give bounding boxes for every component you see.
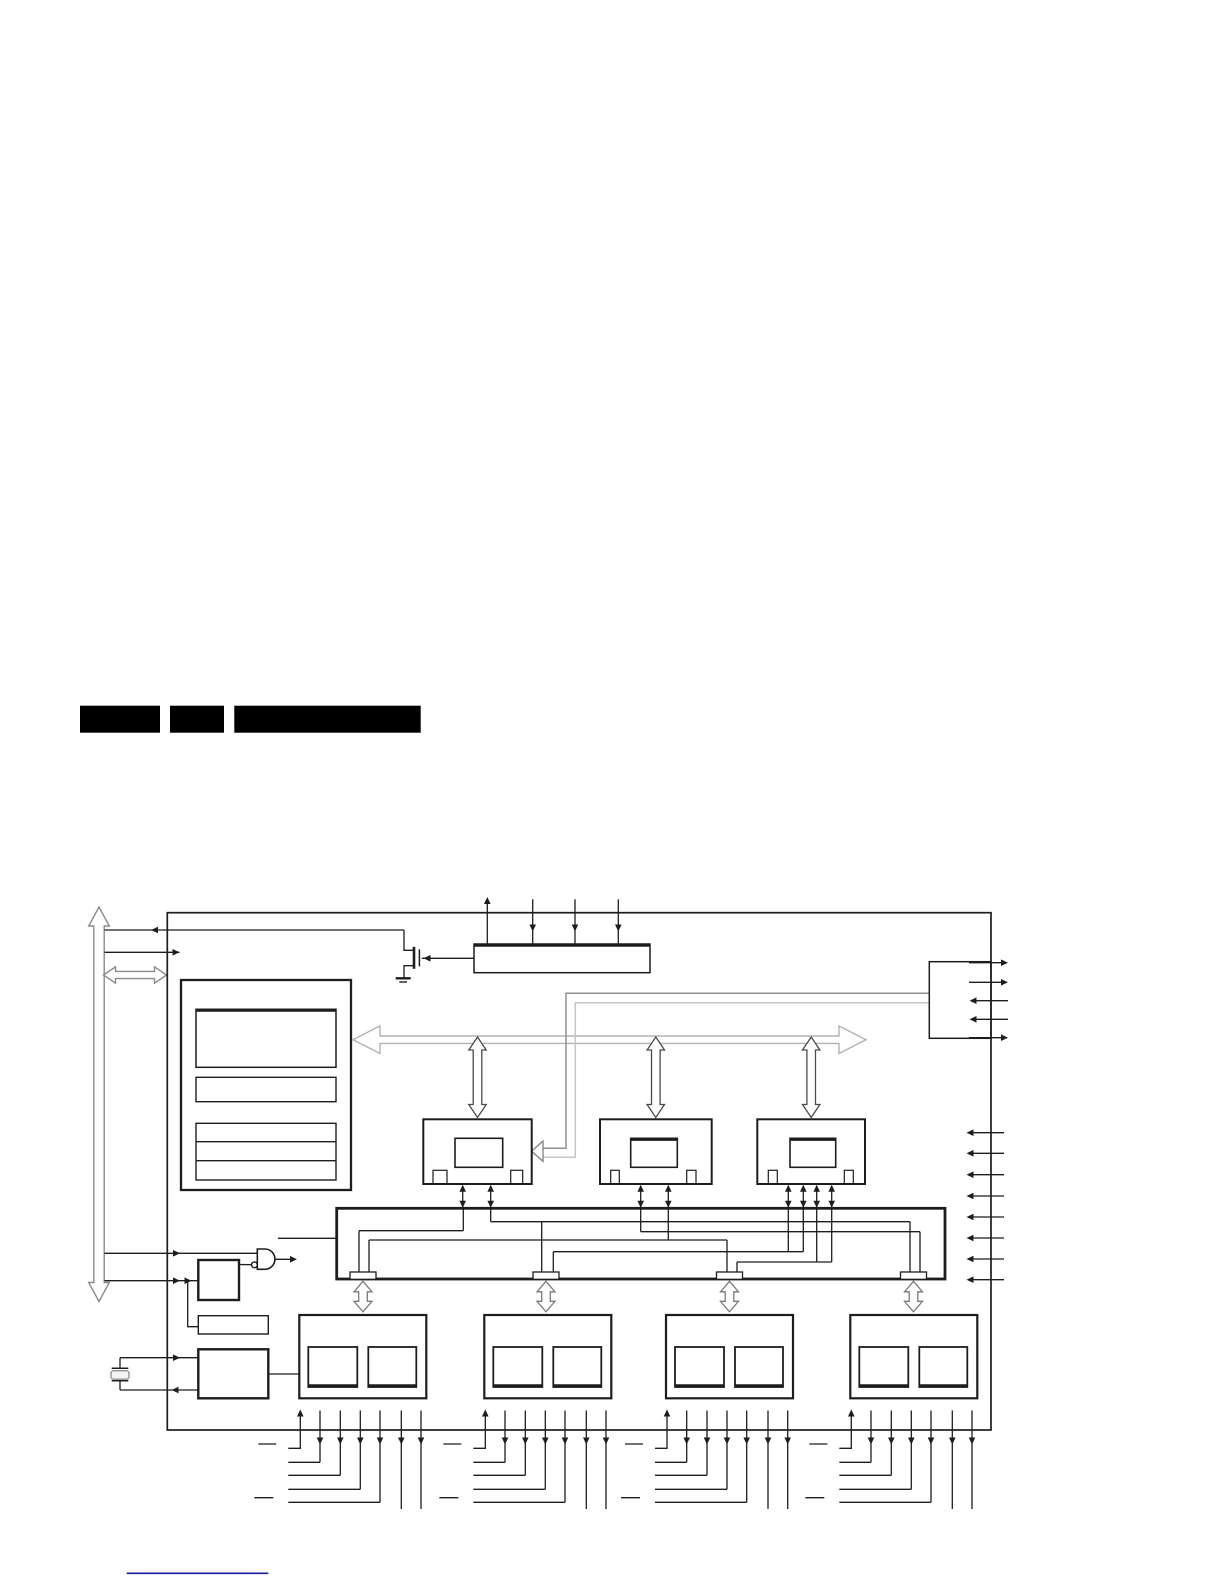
left-inner-rect-3	[196, 1123, 336, 1180]
top-pin-in-2-arrowhead	[572, 925, 579, 932]
right-edge-input-4-arrowhead	[967, 1193, 974, 1200]
mid-block-2-notch-left	[611, 1170, 620, 1183]
control-branch-wire	[188, 1281, 199, 1327]
right-edge-input-3-arrowhead	[967, 1171, 974, 1178]
bus-to-bottom-block-arrow-4	[905, 1281, 923, 1312]
right-edge-input-5-arrowhead	[967, 1214, 974, 1221]
fan-2-pin-5-arrowhead	[562, 1438, 569, 1445]
fan-2-pin-2-arrowhead	[502, 1438, 509, 1445]
divider-register-block	[198, 1316, 268, 1334]
bottom-block-2-core-1	[493, 1347, 542, 1387]
drain-feedback-arrowhead	[151, 927, 158, 934]
nand-gate-body	[257, 1249, 275, 1269]
ic-block-diagram	[0, 0, 1224, 1584]
mid-pin-link-4-up-arrowhead	[665, 1185, 672, 1192]
fan-4-pin-2-arrowhead	[868, 1438, 875, 1445]
mid-pin-link-1-up-arrowhead	[459, 1185, 466, 1192]
fan-4-pin-1-arrowhead	[848, 1410, 855, 1417]
fan-1-pin-4-arrowhead	[357, 1438, 364, 1445]
mid-block-3	[757, 1119, 865, 1184]
bus-tab-2	[533, 1272, 559, 1279]
mid-pin-link-3-up-arrowhead	[637, 1185, 644, 1192]
right-io-block	[929, 962, 991, 1039]
input-line-top-arrowhead	[173, 949, 180, 956]
scanned-document-page	[0, 0, 1224, 1584]
fan-3-pin-3-arrowhead	[704, 1438, 711, 1445]
fan-3-pin-7-arrowhead	[784, 1438, 791, 1445]
mid-pin-link-5-down-arrowhead	[785, 1201, 792, 1208]
mosfet-gate-arrowhead	[424, 955, 431, 962]
bottom-block-4-core-1	[859, 1347, 908, 1387]
right-edge-input-2-arrowhead	[967, 1150, 974, 1157]
mid-pin-link-7-up-arrowhead	[813, 1185, 820, 1192]
mid-pin-link-7-down-arrowhead	[813, 1201, 820, 1208]
bus-link-arrow-block-2	[647, 1037, 664, 1118]
fan-3-pin-6-arrowhead	[765, 1438, 772, 1445]
fan-4-pin-7-arrowhead	[969, 1438, 976, 1445]
nand-output-arrowhead	[290, 1256, 297, 1263]
bus-to-bottom-block-arrow-3	[721, 1281, 739, 1312]
mid-pin-link-4-down-arrowhead	[665, 1201, 672, 1208]
bottom-block-3-core-2	[735, 1347, 783, 1387]
mid-pin-link-8-up-arrowhead	[828, 1185, 835, 1192]
right-io-out-pin-2-arrowhead	[1001, 979, 1008, 986]
fan-1-pin-2-arrowhead	[317, 1438, 324, 1445]
right-edge-input-8-arrowhead	[967, 1276, 974, 1283]
mosfet-source-wire	[404, 966, 414, 979]
bottom-block-4-core-2	[919, 1347, 967, 1387]
fan-3-pin-1-arrowhead	[664, 1410, 671, 1417]
fan-3-pin-2-arrowhead	[683, 1438, 690, 1445]
fan-2-pin-7-arrowhead	[603, 1438, 610, 1445]
mid-pin-link-1-down-arrowhead	[459, 1201, 466, 1208]
mid-block-1-notch-right	[511, 1170, 523, 1183]
bottom-block-1-core-1	[308, 1347, 357, 1387]
mid-block-2-notch-right	[687, 1170, 696, 1183]
fan-4-pin-4-arrowhead	[908, 1438, 915, 1445]
right-io-in-pin-1-arrowhead	[970, 997, 977, 1004]
nand-input-1-arrowhead	[173, 1250, 180, 1257]
bus-link-arrow-block-1	[469, 1037, 486, 1118]
fan-1-pin-3-arrowhead	[337, 1438, 344, 1445]
mosfet-drain-wire	[404, 930, 414, 950]
mid-block-2-core	[631, 1138, 678, 1167]
nand-inverter-bubble	[252, 1262, 258, 1268]
fan-2-pin-6-arrowhead	[583, 1438, 590, 1445]
bus-tab-3	[717, 1272, 743, 1279]
mid-block-1	[423, 1119, 531, 1184]
bus-link-arrow-block-3	[803, 1037, 820, 1118]
left-inner-rect-1	[196, 1009, 336, 1067]
bottom-block-2-core-2	[553, 1347, 601, 1387]
fan-3-pin-5-arrowhead	[743, 1438, 750, 1445]
left-horizontal-bus-arrow	[104, 967, 167, 983]
fan-1-pin-1-arrowhead	[297, 1410, 304, 1417]
left-vertical-bus-arrow	[89, 907, 110, 1302]
redacted-title-bar-2	[170, 706, 224, 733]
left-inner-rect-2	[196, 1077, 336, 1101]
fan-4-pin-5-arrowhead	[928, 1438, 935, 1445]
fan-4-pin-3-arrowhead	[888, 1438, 895, 1445]
bus-tab-1	[350, 1272, 376, 1279]
bus-to-bottom-block-arrow-1	[354, 1281, 372, 1312]
fan-2-pin-4-arrowhead	[542, 1438, 549, 1445]
xtal-top-arrowhead	[173, 1354, 180, 1361]
mid-block-1-notch-left	[433, 1170, 447, 1183]
fan-4-pin-6-arrowhead	[949, 1438, 956, 1445]
gray-feed-arrowhead	[532, 1141, 544, 1161]
bottom-block-1-core-2	[368, 1347, 416, 1387]
bus-tab-4	[901, 1272, 927, 1279]
mid-pin-link-6-down-arrowhead	[800, 1201, 807, 1208]
right-io-out-pin-1-arrowhead	[1001, 959, 1008, 966]
mid-block-1-core	[455, 1138, 503, 1167]
redacted-title-bar-1	[80, 706, 160, 733]
right-io-in-pin-2-arrowhead	[970, 1016, 977, 1023]
fan-3-pin-4-arrowhead	[724, 1438, 731, 1445]
xtal-bottom-arrowhead	[172, 1387, 179, 1394]
redacted-title-bar-3	[234, 706, 420, 733]
mid-block-3-notch-right	[844, 1170, 853, 1183]
mid-block-3-notch-left	[768, 1170, 777, 1183]
mid-block-2	[600, 1119, 712, 1184]
small-logic-block	[198, 1260, 239, 1300]
right-edge-input-6-arrowhead	[967, 1235, 974, 1242]
gray-bus-horizontal	[353, 1026, 866, 1054]
ic-outer-border	[167, 913, 991, 1430]
mid-pin-link-5-up-arrowhead	[785, 1185, 792, 1192]
top-pin-in-1-arrowhead	[529, 925, 536, 932]
top-pin-up-arrowhead	[484, 897, 491, 904]
control-input-arrowhead-1	[173, 1277, 180, 1284]
fan-1-pin-6-arrowhead	[398, 1438, 405, 1445]
oscillator-block	[198, 1349, 268, 1398]
right-io-out-pin-3-arrowhead	[1001, 1034, 1008, 1041]
bus-to-bottom-block-arrow-2	[537, 1281, 555, 1312]
fan-2-pin-3-arrowhead	[522, 1438, 529, 1445]
fan-1-pin-5-arrowhead	[377, 1438, 384, 1445]
mid-pin-link-2-down-arrowhead	[487, 1201, 494, 1208]
fan-2-pin-1-arrowhead	[482, 1410, 489, 1417]
top-pin-in-3-arrowhead	[615, 925, 622, 932]
crystal-body	[111, 1371, 129, 1379]
right-edge-input-1-arrowhead	[967, 1129, 974, 1136]
fan-1-pin-7-arrowhead	[418, 1438, 425, 1445]
mid-pin-link-3-down-arrowhead	[637, 1201, 644, 1208]
bottom-block-3-core-1	[675, 1347, 724, 1387]
mid-block-3-core	[790, 1138, 836, 1167]
mid-pin-link-6-up-arrowhead	[800, 1185, 807, 1192]
mid-pin-link-8-down-arrowhead	[828, 1201, 835, 1208]
right-edge-input-7-arrowhead	[967, 1256, 974, 1263]
mid-pin-link-2-up-arrowhead	[487, 1185, 494, 1192]
top-io-block	[474, 944, 650, 973]
